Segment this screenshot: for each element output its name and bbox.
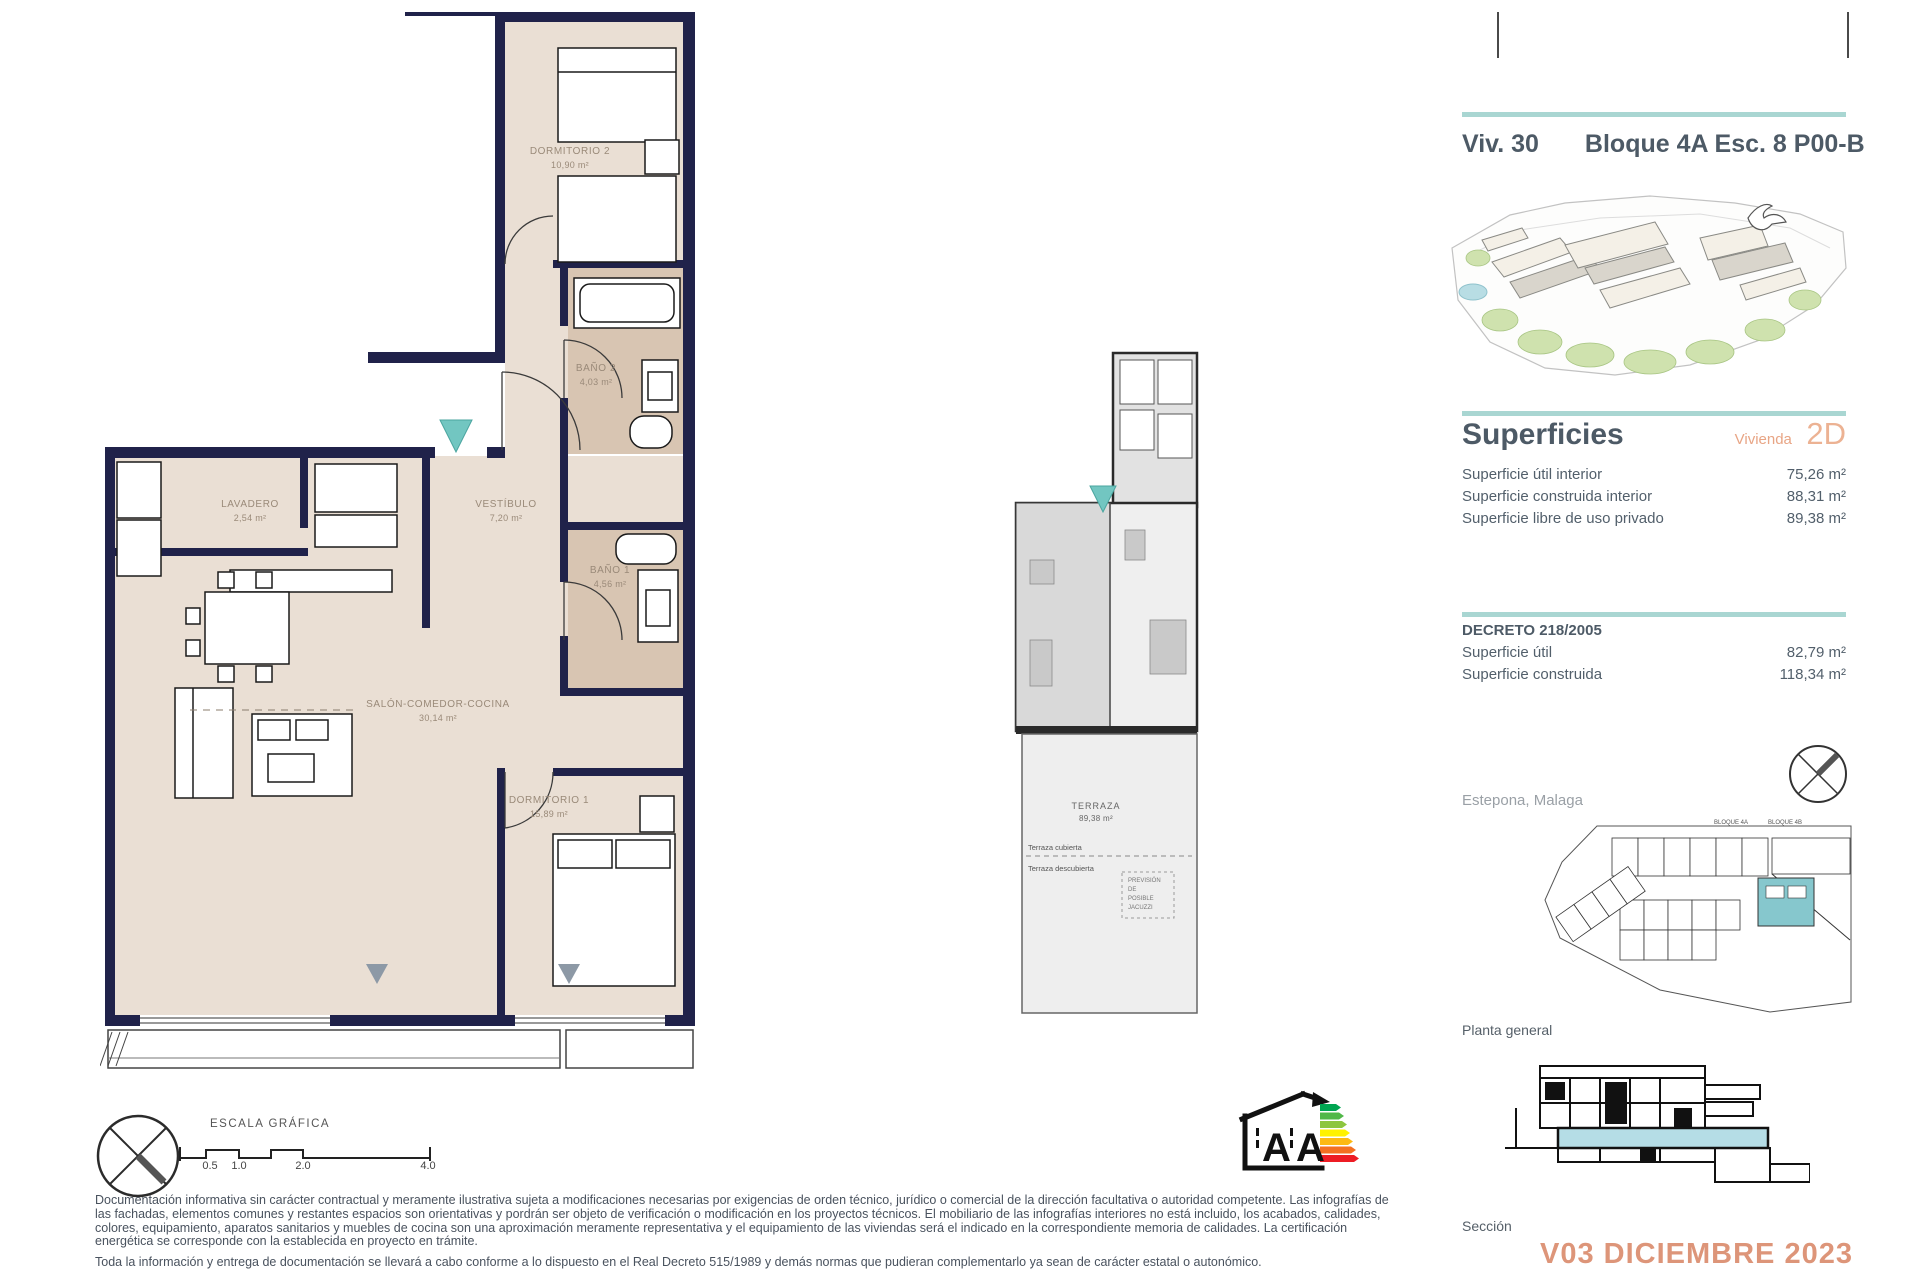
room-label-dormitorio2: DORMITORIO 210,90 m² <box>530 145 610 171</box>
superficies-header: Superficies Vivienda 2D <box>1462 416 1846 452</box>
scale-tick: 1.0 <box>231 1160 246 1172</box>
svg-text:A: A <box>1262 1126 1291 1170</box>
vivienda-label: Vivienda <box>1735 431 1792 448</box>
section-drawing <box>1505 1058 1810 1194</box>
room-label-bano2: BAÑO 24,03 m² <box>576 362 616 388</box>
spec-row: Superficie útil interior75,26 m² <box>1462 466 1846 483</box>
location-label: Estepona, Malaga <box>1462 792 1583 809</box>
svg-text:A: A <box>1296 1126 1325 1170</box>
room-label-salon: SALÓN-COMEDOR-COCINA30,14 m² <box>358 698 518 724</box>
vivienda-type: 2D <box>1806 416 1846 451</box>
compass-icon <box>1786 742 1852 808</box>
scale-tick: 4.0 <box>420 1160 435 1172</box>
spec-row: Superficie construida interior88,31 m² <box>1462 488 1846 505</box>
accent-rule-top <box>1462 112 1846 117</box>
terraza-descubierta-label: Terraza descubierta <box>1028 864 1094 873</box>
seccion-label: Sección <box>1462 1218 1512 1234</box>
planta-general-label: Planta general <box>1462 1022 1552 1038</box>
spec-row: Superficie construida118,34 m² <box>1462 666 1846 683</box>
scale-tick: 2.0 <box>295 1160 310 1172</box>
terraza-cubierta-label: Terraza cubierta <box>1028 843 1082 852</box>
room-label-dormitorio1: DORMITORIO 115,89 m² <box>509 794 589 820</box>
unit-number: Viv. 30 <box>1462 130 1539 159</box>
disclaimer-paragraph: Documentación informativa sin carácter c… <box>95 1194 1395 1249</box>
page-title: Viv. 30 Bloque 4A Esc. 8 P00-B <box>1462 130 1865 159</box>
room-label-vestibulo: VESTÍBULO7,20 m² <box>475 498 537 524</box>
room-label-lavadero: LAVADERO2,54 m² <box>221 498 279 524</box>
room-label-bano1: BAÑO 14,56 m² <box>590 564 630 590</box>
scale-tick: 0.5 <box>202 1160 217 1172</box>
version-stamp: V03 DICIEMBRE 2023 <box>1540 1238 1853 1271</box>
highlighted-unit <box>1758 878 1814 926</box>
decreto-title: DECRETO 218/2005 <box>1462 622 1602 639</box>
energy-rating-icon: A A <box>1238 1090 1360 1176</box>
svg-text:BLOQUE 4B: BLOQUE 4B <box>1768 820 1802 826</box>
aerial-render-sketch <box>1445 188 1850 400</box>
block-identifier: Bloque 4A Esc. 8 P00-B <box>1585 130 1865 159</box>
siteplan-drawing: BLOQUE 4A BLOQUE 4B <box>1532 816 1855 1018</box>
jacuzzi-note: PREVISIÓN DE POSIBLE JACUZZI <box>1122 873 1180 913</box>
accent-rule-decreto <box>1462 612 1846 617</box>
superficies-title: Superficies <box>1462 418 1624 452</box>
fold-mark-right <box>1847 12 1849 58</box>
svg-text:BLOQUE 4A: BLOQUE 4A <box>1714 820 1748 826</box>
spec-row: Superficie libre de uso privado89,38 m² <box>1462 510 1846 527</box>
disclaimer-paragraph: Toda la información y entrega de documen… <box>95 1256 1395 1270</box>
terraza-label: TERRAZA89,38 m² <box>1071 800 1120 824</box>
escala-grafica-title: ESCALA GRÁFICA <box>210 1118 330 1130</box>
entrance-arrow-icon <box>440 420 472 452</box>
fold-mark-left <box>1497 12 1499 58</box>
spec-row: Superficie útil82,79 m² <box>1462 644 1846 661</box>
keyplan-drawing <box>1000 345 1215 1025</box>
